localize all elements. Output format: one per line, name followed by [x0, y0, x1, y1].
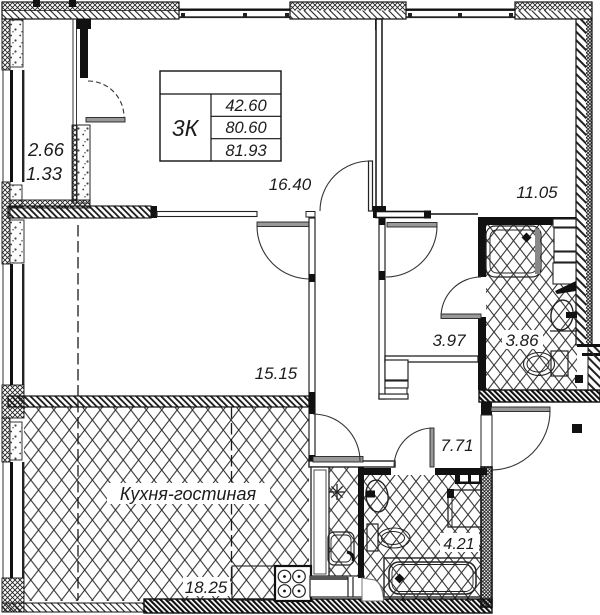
svg-text:1.33: 1.33: [26, 163, 63, 184]
svg-text:3К: 3К: [172, 115, 200, 141]
svg-text:3.97: 3.97: [432, 331, 466, 350]
svg-text:11.05: 11.05: [516, 183, 558, 202]
svg-text:16.40: 16.40: [269, 175, 312, 194]
svg-text:Кухня-гостиная: Кухня-гостиная: [120, 484, 257, 504]
svg-text:80.60: 80.60: [225, 119, 267, 137]
svg-text:15.15: 15.15: [255, 364, 298, 383]
svg-text:42.60: 42.60: [225, 97, 267, 115]
svg-text:18.25: 18.25: [185, 578, 228, 597]
svg-text:7.71: 7.71: [440, 436, 473, 455]
svg-text:3.86: 3.86: [505, 331, 539, 350]
svg-text:2.66: 2.66: [27, 139, 65, 160]
svg-text:4.21: 4.21: [443, 536, 474, 553]
svg-text:81.93: 81.93: [225, 142, 267, 160]
